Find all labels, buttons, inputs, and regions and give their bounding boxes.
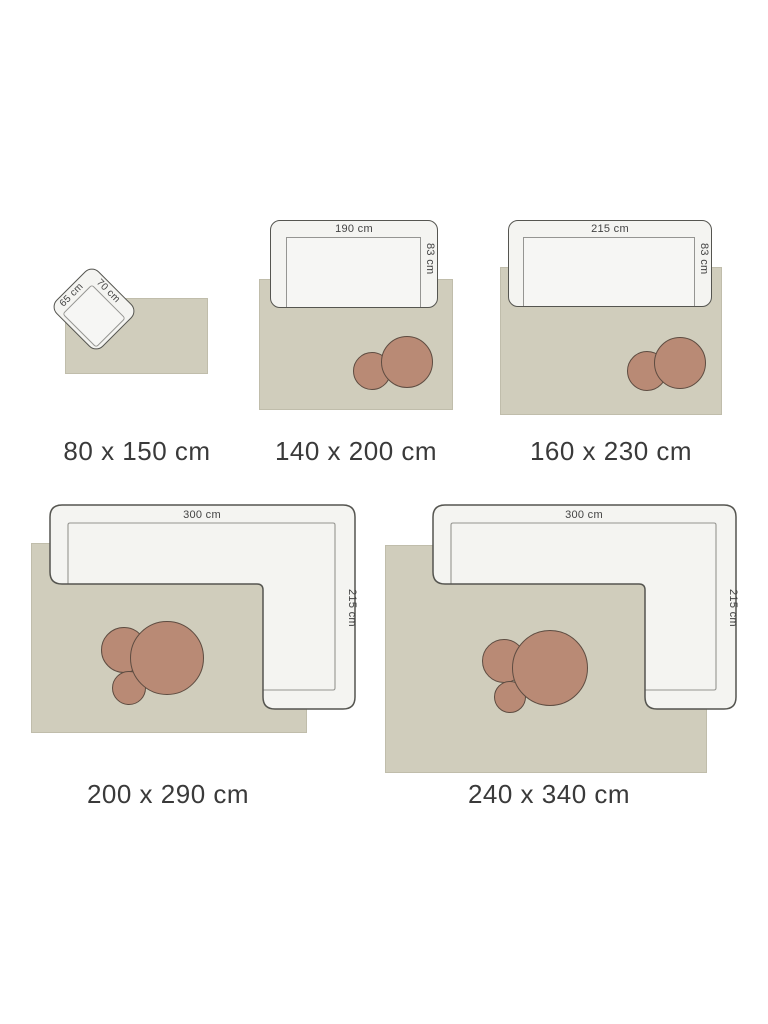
sofa-top-view: 190 cm 83 cm (270, 220, 438, 308)
corner-sofa-top-view: 300 cm 215 cm (433, 505, 736, 709)
corner-sofa-width-label: 300 cm (565, 509, 603, 521)
side-table-large (654, 337, 706, 389)
corner-sofa-outline (433, 505, 736, 709)
rug-size-guide: 65 cm 70 cm 80 x 150 cm 190 cm 83 cm 140… (0, 0, 768, 1024)
sofa-width-label: 215 cm (509, 223, 711, 235)
corner-sofa-outline (50, 505, 355, 709)
size-label-200x290: 200 x 290 cm (87, 779, 249, 810)
corner-sofa-top-view: 300 cm 215 cm (50, 505, 355, 709)
corner-sofa-depth-label: 215 cm (346, 589, 358, 627)
side-table-large (381, 336, 433, 388)
sofa-seat (523, 237, 695, 306)
sofa-width-label: 190 cm (271, 223, 437, 235)
size-label-240x340: 240 x 340 cm (468, 779, 630, 810)
sofa-seat (286, 237, 421, 307)
sofa-top-view: 215 cm 83 cm (508, 220, 712, 307)
sofa-depth-label: 83 cm (698, 243, 710, 274)
size-label-80x150: 80 x 150 cm (63, 436, 210, 467)
size-label-160x230: 160 x 230 cm (530, 436, 692, 467)
size-label-140x200: 140 x 200 cm (275, 436, 437, 467)
corner-sofa-depth-label: 215 cm (727, 589, 739, 627)
sofa-depth-label: 83 cm (424, 243, 436, 274)
corner-sofa-width-label: 300 cm (183, 509, 221, 521)
